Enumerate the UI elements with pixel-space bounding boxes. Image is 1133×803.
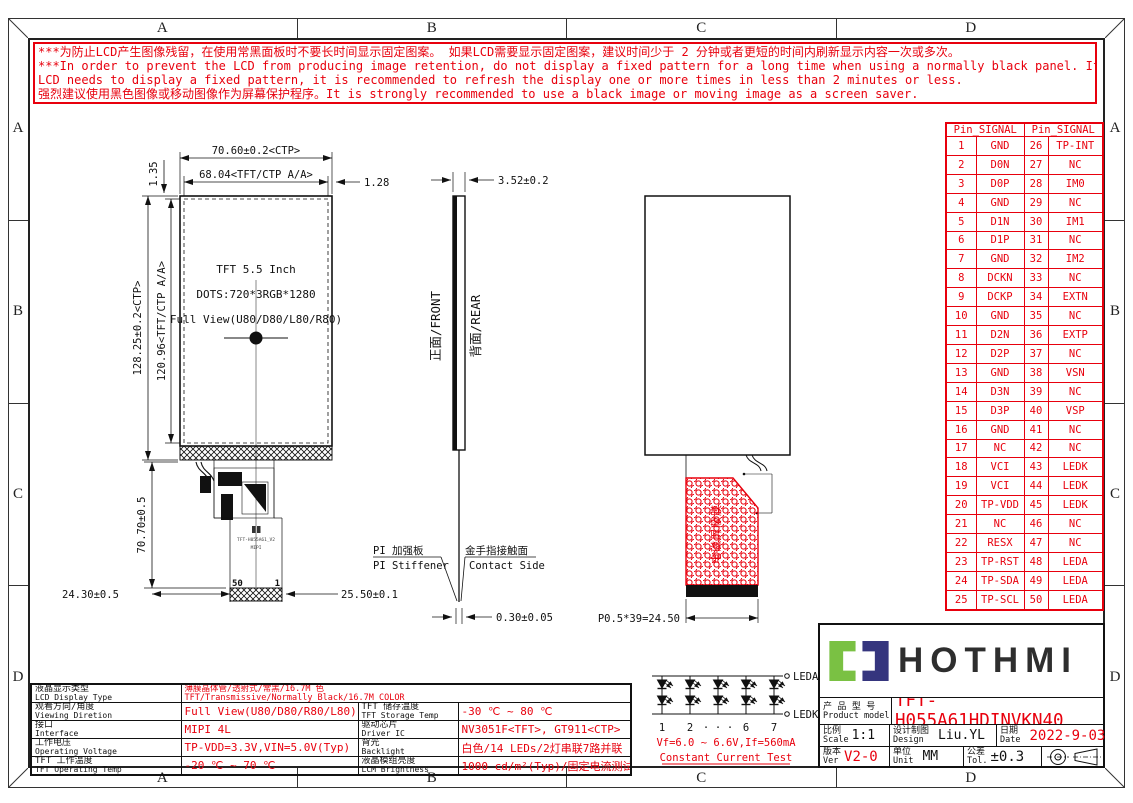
pin-cell: 12: [946, 344, 976, 363]
pin-cell: NC: [1048, 307, 1103, 326]
pin-cell: 35: [1024, 307, 1048, 326]
pin-header-right: Pin_SIGNAL: [1024, 123, 1103, 137]
pin-cell: 38: [1024, 363, 1048, 382]
pin-cell: TP-INT: [1048, 137, 1103, 156]
led-spec-text: Vf=6.0 ~ 6.6V,If=560mA: [656, 737, 796, 749]
pin-cell: TP-SDA: [976, 571, 1024, 590]
pin-cell: GND: [976, 193, 1024, 212]
pin-row: 13GND38VSN: [946, 363, 1103, 382]
dim-thickness: 3.52±0.2: [498, 175, 549, 187]
pin-cell: IM0: [1048, 174, 1103, 193]
pin-row: 10GND35NC: [946, 307, 1103, 326]
title-block: HOTHMI 产 品 型 号 Product model TFT-H055A61…: [818, 623, 1105, 768]
pin-cell: 15: [946, 401, 976, 420]
dim-edge-top: 1.35: [148, 161, 160, 186]
spec-value-cell: MIPI 4L: [181, 721, 358, 739]
dim-bottom-left: 24.30±0.5: [62, 589, 119, 601]
pin-cell: D0N: [976, 155, 1024, 174]
dim-width-ctp: 70.60±0.2<CTP>: [212, 145, 301, 157]
hothmi-logo-icon: [828, 635, 890, 687]
pin-cell: 43: [1024, 458, 1048, 477]
front-side-label: 正面/FRONT: [428, 290, 443, 361]
pin-row: 16GND41NC: [946, 420, 1103, 439]
product-model-row: 产 品 型 号 Product model TFT-H055A61HDINVKN…: [820, 697, 1105, 724]
spec-row: 观看方向/角度Viewing DiretionFull View(U80/D80…: [31, 703, 631, 721]
spec-value-en: TFT/Transmissive/Normally Black/16.7M CO…: [185, 694, 631, 703]
spec-label-cell: 观看方向/角度Viewing Diretion: [31, 703, 181, 721]
spec-row: 液晶显示类型 LCD Display Type 薄膜晶体管/透射式/常黑/16.…: [31, 684, 631, 703]
rear-side-label: 背面/REAR: [468, 294, 483, 357]
spec-row: 工作电压Operating VoltageTP-VDD=3.3V,VIN=5.0…: [31, 739, 631, 757]
pin-cell: GND: [976, 137, 1024, 156]
unit-label-en: Unit: [893, 757, 913, 766]
contact-label-cn: 金手指接触面: [465, 544, 528, 557]
spec-label-cell: 液晶模组亮度LCM Brightness: [358, 757, 458, 776]
pin-cell: GND: [976, 363, 1024, 382]
pin-cell: NC: [1048, 515, 1103, 534]
pin-cell: LEDK: [1048, 458, 1103, 477]
pin-cell: 37: [1024, 344, 1048, 363]
pin-row: 7GND32IM2: [946, 250, 1103, 269]
zone-label-a: A: [8, 38, 28, 220]
pin-cell: 30: [1024, 212, 1048, 231]
pin-table-body: 1GND26TP-INT2D0N27NC3D0P28IM04GND29NC5D1…: [946, 137, 1103, 611]
pin-cell: EXTN: [1048, 288, 1103, 307]
dim-fpc-length: 70.70±0.5: [136, 497, 148, 554]
ver-label-en: Ver: [823, 757, 841, 766]
panel-size-label: TFT 5.5 Inch: [216, 263, 295, 276]
pin-cell: NC: [1048, 420, 1103, 439]
spec-label-cell: 接口Interface: [31, 721, 181, 739]
dim-height-ctp: 128.25±0.2<CTP>: [132, 281, 144, 376]
pin-cell: NC: [1048, 231, 1103, 250]
pin-cell: 14: [946, 382, 976, 401]
product-model-value: TFT-H055A61HDINVKN40: [895, 698, 1105, 724]
panel-dots-label: DOTS:720*3RGB*1280: [196, 288, 315, 301]
scale-value: 1:1: [852, 728, 875, 743]
pin-row: 14D3N39NC: [946, 382, 1103, 401]
pin-row: 12D2P37NC: [946, 344, 1103, 363]
leda-terminal-label: LEDA: [793, 671, 819, 683]
zone-label-a: A: [1105, 38, 1125, 220]
spec-value-cell: Full View(U80/D80/R80/L80): [181, 703, 358, 721]
pin-row: 6D1P31NC: [946, 231, 1103, 250]
pin-cell: 26: [1024, 137, 1048, 156]
pin-cell: 17: [946, 439, 976, 458]
pin-cell: NC: [1048, 155, 1103, 174]
pin-cell: LEDK: [1048, 477, 1103, 496]
spec-label-cell: 工作电压Operating Voltage: [31, 739, 181, 757]
spec-table: 液晶显示类型 LCD Display Type 薄膜晶体管/透射式/常黑/16.…: [30, 683, 632, 776]
pin-cell: 39: [1024, 382, 1048, 401]
product-label-en: Product model: [823, 712, 890, 721]
constant-current-text: Constant Current Test: [660, 752, 793, 764]
pin-cell: 6: [946, 231, 976, 250]
date-value: 2022-9-03: [1029, 728, 1105, 744]
pin-cell: D2N: [976, 326, 1024, 345]
pin-cell: DCKP: [976, 288, 1024, 307]
pin-row: 24TP-SDA49LEDA: [946, 571, 1103, 590]
pin-cell: 49: [1024, 571, 1048, 590]
pin-cell: 27: [1024, 155, 1048, 174]
dim-fpc-thickness: 0.30±0.05: [496, 612, 553, 624]
pin-cell: 33: [1024, 269, 1048, 288]
spec-label-cell: 驱动芯片Driver IC: [358, 721, 458, 739]
pin-signal-table: Pin_SIGNAL Pin_SIGNAL 1GND26TP-INT2D0N27…: [945, 122, 1104, 611]
pin-cell: 3: [946, 174, 976, 193]
pin-cell: 41: [1024, 420, 1048, 439]
pin-cell: 19: [946, 477, 976, 496]
dim-height-aa: 120.96<TFT/CTP A/A>: [156, 261, 168, 381]
pin-cell: TP-RST: [976, 552, 1024, 571]
pin-cell: 13: [946, 363, 976, 382]
pin-cell: VSP: [1048, 401, 1103, 420]
pin-cell: VCI: [976, 458, 1024, 477]
spec-row: TFT 工作温度TFT Operating Temp-20 ℃ ~ 70 ℃液晶…: [31, 757, 631, 776]
pin-row: 20TP-VDD45LEDK: [946, 496, 1103, 515]
warning-box: ***为防止LCD产生图像残留，在使用常黑面板时不要长时间显示固定图案。 如果L…: [33, 42, 1097, 104]
branch-label: 6: [743, 722, 749, 734]
dim-connector: 25.50±0.1: [341, 589, 398, 601]
pin-cell: D3N: [976, 382, 1024, 401]
pin-cell: VSN: [1048, 363, 1103, 382]
pin-cell: 46: [1024, 515, 1048, 534]
pin-row: 11D2N36EXTP: [946, 326, 1103, 345]
pin-50-label: 50: [232, 579, 243, 589]
spec-label-cell: 背光Backlight: [358, 739, 458, 757]
pin-cell: NC: [1048, 534, 1103, 553]
pin-row: 1GND26TP-INT: [946, 137, 1103, 156]
spec-value-cell: 白色/14 LEDs/2灯串联7路并联: [458, 739, 631, 757]
ledk-terminal-label: LEDK: [793, 709, 819, 721]
pin-cell: LEDA: [1048, 571, 1103, 590]
branch-label: 2: [687, 722, 693, 734]
spec-label-cell: TFT 工作温度TFT Operating Temp: [31, 757, 181, 776]
dim-edge-right: 1.28: [364, 177, 389, 189]
fpc-model-text: TFT-H055A61_V2: [237, 537, 275, 543]
pin-cell: 31: [1024, 231, 1048, 250]
corner-mark: [1105, 18, 1125, 38]
pin-row: 5D1N30IM1: [946, 212, 1103, 231]
pin-row: 18VCI43LEDK: [946, 458, 1103, 477]
pin-cell: NC: [1048, 439, 1103, 458]
spec-table-body: 液晶显示类型 LCD Display Type 薄膜晶体管/透射式/常黑/16.…: [31, 684, 631, 775]
pin-cell: GND: [976, 307, 1024, 326]
dim-width-aa: 68.04<TFT/CTP A/A>: [199, 169, 313, 181]
led-array: [652, 674, 789, 717]
pin-cell: TP-SCL: [976, 590, 1024, 610]
pin-cell: 2: [946, 155, 976, 174]
design-value: Liu.YL: [938, 728, 985, 743]
scale-label-en: Scale: [823, 736, 849, 745]
mechanical-drawing: 70.60±0.2<CTP> 68.04<TFT/CTP A/A> 1.28 1…: [28, 110, 938, 685]
pin-row: 8DCKN33NC: [946, 269, 1103, 288]
pin-row: 22RESX47NC: [946, 534, 1103, 553]
pin-cell: 29: [1024, 193, 1048, 212]
pin-cell: D3P: [976, 401, 1024, 420]
branch-label: ·: [715, 722, 721, 734]
pin-cell: 45: [1024, 496, 1048, 515]
zone-strip-left: ABCD: [8, 38, 28, 768]
backlight-circuit: LEDA LEDK 1 2 · · · 6 7 Vf=6.0 ~ 6.6V,If…: [642, 668, 832, 768]
pin-cell: 36: [1024, 326, 1048, 345]
pin-header-left: Pin_SIGNAL: [946, 123, 1024, 137]
pin-cell: TP-VDD: [976, 496, 1024, 515]
pin-row: 19VCI44LEDK: [946, 477, 1103, 496]
spec-label-en: LCD Display Type: [35, 694, 181, 702]
pin-cell: 20: [946, 496, 976, 515]
zone-label-b: B: [1105, 220, 1125, 403]
pin-cell: NC: [1048, 269, 1103, 288]
pin-cell: 9: [946, 288, 976, 307]
pin-cell: NC: [1048, 344, 1103, 363]
pin-cell: D1P: [976, 231, 1024, 250]
pin-cell: D2P: [976, 344, 1024, 363]
fpc-mipi-text: MIPI: [251, 545, 262, 551]
pin-cell: 50: [1024, 590, 1048, 610]
pin-cell: 32: [1024, 250, 1048, 269]
pin-cell: GND: [976, 420, 1024, 439]
pin-cell: 8: [946, 269, 976, 288]
pin-cell: 16: [946, 420, 976, 439]
pin-cell: DCKN: [976, 269, 1024, 288]
pin-cell: 34: [1024, 288, 1048, 307]
zone-label-d: D: [836, 18, 1106, 38]
ver-unit-tol-row: 版本 Ver V2-0 单位 Unit MM 公差 Tol. ±0.3: [820, 746, 1105, 766]
spec-value-cell: 1000 cd/m²(Typ)/固定电流测试: [458, 757, 631, 776]
pin-cell: 47: [1024, 534, 1048, 553]
front-view: [142, 152, 360, 602]
pin-row: 17NC42NC: [946, 439, 1103, 458]
warning-line: ***为防止LCD产生图像残留，在使用常黑面板时不要长时间显示固定图案。 如果L…: [38, 45, 1092, 59]
warning-line: 强烈建议使用黑色图像或移动图像作为屏幕保护程序。It is strongly r…: [38, 87, 1092, 101]
spec-label-cell: TFT 储存温度TFT Storage Temp: [358, 703, 458, 721]
pin-cell: 21: [946, 515, 976, 534]
pin-cell: D0P: [976, 174, 1024, 193]
zone-strip-top: ABCD: [28, 18, 1105, 38]
pin-cell: 44: [1024, 477, 1048, 496]
pin-cell: 48: [1024, 552, 1048, 571]
pin-1-label: 1: [275, 579, 280, 589]
spec-row: 接口InterfaceMIPI 4L驱动芯片Driver ICNV3051F<T…: [31, 721, 631, 739]
drawing-sheet: ABCD ABCD ABCD ABCD ***为防止LCD产生图像残留，在使用常…: [0, 0, 1133, 803]
warning-line: ***In order to prevent the LCD from prod…: [38, 59, 1092, 73]
date-label-en: Date: [1000, 736, 1020, 745]
pin-cell: RESX: [976, 534, 1024, 553]
pin-cell: 25: [946, 590, 976, 610]
pin-cell: 7: [946, 250, 976, 269]
pin-cell: EXTP: [1048, 326, 1103, 345]
pin-row: 21NC46NC: [946, 515, 1103, 534]
shield-film-label: 电磁屏蔽膜: [710, 504, 723, 564]
pin-table-header: Pin_SIGNAL Pin_SIGNAL: [946, 123, 1103, 137]
scale-design-date-row: 比例 Scale 1:1 设计制图 Design Liu.YL 日期 Date …: [820, 724, 1105, 746]
pin-cell: NC: [1048, 382, 1103, 401]
corner-mark: [8, 768, 28, 788]
zone-label-a: A: [28, 18, 297, 38]
stiffener-label-en: PI Stiffener: [373, 560, 449, 572]
pin-cell: 10: [946, 307, 976, 326]
unit-value: MM: [922, 749, 938, 764]
product-label-cn: 产 品 型 号: [823, 702, 890, 712]
pin-cell: 40: [1024, 401, 1048, 420]
corner-mark: [8, 18, 28, 38]
zone-label-c: C: [8, 403, 28, 586]
spec-value-cell: -30 ℃ ~ 80 ℃: [458, 703, 631, 721]
pin-row: 4GND29NC: [946, 193, 1103, 212]
projection-symbol-icon: [1047, 748, 1103, 766]
pin-cell: LEDA: [1048, 590, 1103, 610]
pin-cell: 23: [946, 552, 976, 571]
zone-label-d: D: [836, 768, 1106, 788]
spec-value-cell: -20 ℃ ~ 70 ℃: [181, 757, 358, 776]
contact-label-en: Contact Side: [469, 560, 545, 572]
pin-cell: 28: [1024, 174, 1048, 193]
pin-cell: 42: [1024, 439, 1048, 458]
zone-label-c: C: [1105, 403, 1125, 586]
warning-line: LCD needs to display a fixed pattern, it…: [38, 73, 1092, 87]
pin-row: 15D3P40VSP: [946, 401, 1103, 420]
pin-cell: 1: [946, 137, 976, 156]
pin-cell: NC: [1048, 193, 1103, 212]
pin-cell: 4: [946, 193, 976, 212]
tol-value: ±0.3: [990, 749, 1024, 765]
ver-value: V2-0: [844, 749, 878, 765]
zone-label-b: B: [297, 18, 567, 38]
pin-row: 25TP-SCL50LEDA: [946, 590, 1103, 610]
pin-cell: IM1: [1048, 212, 1103, 231]
stiffener-label-cn: PI 加强板: [373, 544, 424, 557]
dim-pin-pitch: P0.5*39=24.50: [598, 613, 680, 625]
tol-label-en: Tol.: [967, 757, 987, 766]
pin-cell: 5: [946, 212, 976, 231]
pin-cell: 24: [946, 571, 976, 590]
zone-label-d: D: [8, 585, 28, 768]
corner-mark: [1105, 768, 1125, 788]
pin-row: 2D0N27NC: [946, 155, 1103, 174]
pin-cell: LEDA: [1048, 552, 1103, 571]
pin-cell: GND: [976, 250, 1024, 269]
spec-value-cell: TP-VDD=3.3V,VIN=5.0V(Typ): [181, 739, 358, 757]
zone-label-d: D: [1105, 585, 1125, 768]
zone-strip-right: ABCD: [1105, 38, 1125, 768]
spec-value-cell: NV3051F<TFT>, GT911<CTP>: [458, 721, 631, 739]
branch-label: ·: [703, 722, 709, 734]
zone-label-c: C: [566, 18, 836, 38]
pin-row: 3D0P28IM0: [946, 174, 1103, 193]
logo-text: HOTHMI: [898, 641, 1078, 681]
pin-cell: VCI: [976, 477, 1024, 496]
pin-cell: NC: [976, 439, 1024, 458]
branch-label: ·: [727, 722, 733, 734]
panel-view-label: Full View(U80/D80/L80/R80): [170, 313, 342, 326]
pin-row: 23TP-RST48LEDA: [946, 552, 1103, 571]
pin-row: 9DCKP34EXTN: [946, 288, 1103, 307]
pin-cell: LEDK: [1048, 496, 1103, 515]
branch-label: 1: [659, 722, 665, 734]
pin-cell: 22: [946, 534, 976, 553]
pin-cell: 18: [946, 458, 976, 477]
pin-cell: NC: [976, 515, 1024, 534]
branch-label: 7: [771, 722, 777, 734]
zone-label-b: B: [8, 220, 28, 403]
pin-cell: D1N: [976, 212, 1024, 231]
design-label-en: Design: [893, 736, 929, 745]
pin-cell: IM2: [1048, 250, 1103, 269]
pin-cell: 11: [946, 326, 976, 345]
logo-row: HOTHMI: [820, 625, 1105, 697]
